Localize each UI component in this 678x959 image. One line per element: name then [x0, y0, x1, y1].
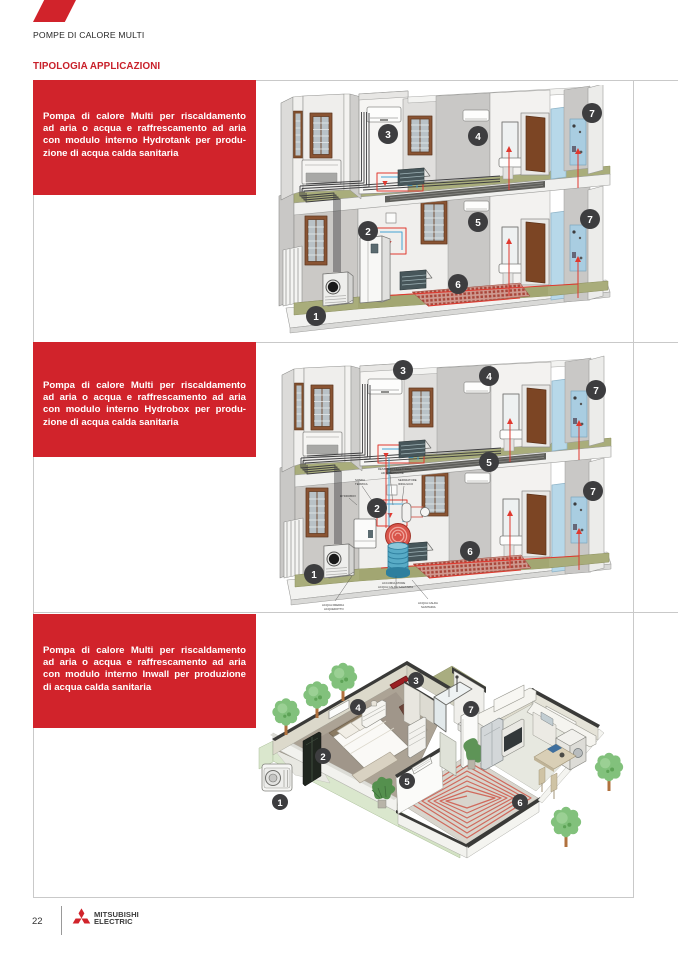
svg-text:6: 6	[455, 280, 461, 291]
svg-text:7: 7	[593, 386, 599, 397]
svg-text:7: 7	[589, 109, 595, 120]
svg-text:5: 5	[486, 458, 492, 469]
svg-text:1: 1	[277, 798, 283, 809]
svg-text:7: 7	[587, 215, 593, 226]
svg-text:2: 2	[365, 227, 371, 238]
svg-text:2: 2	[320, 752, 325, 763]
svg-text:TERMICA: TERMICA	[355, 482, 368, 486]
svg-text:7: 7	[590, 487, 596, 498]
svg-text:AD IMMERSIONE: AD IMMERSIONE	[381, 471, 404, 475]
svg-text:1: 1	[313, 312, 319, 323]
svg-text:3: 3	[413, 676, 418, 687]
svg-text:5: 5	[404, 777, 410, 788]
svg-text:3: 3	[385, 130, 391, 141]
svg-text:6: 6	[467, 547, 473, 558]
svg-text:SANITARIA: SANITARIA	[421, 605, 436, 609]
svg-text:ACQUA CALDA SANITARIA: ACQUA CALDA SANITARIA	[378, 585, 413, 589]
svg-text:4: 4	[355, 703, 361, 714]
svg-text:7: 7	[468, 705, 473, 716]
svg-text:3: 3	[400, 366, 406, 377]
svg-text:2: 2	[374, 504, 380, 515]
svg-text:4: 4	[486, 372, 492, 383]
svg-text:1: 1	[311, 570, 317, 581]
svg-text:ACQUEDOTTO: ACQUEDOTTO	[324, 607, 345, 611]
svg-text:5: 5	[475, 218, 481, 229]
svg-text:4: 4	[475, 132, 481, 143]
svg-text:IDRAULICO: IDRAULICO	[398, 482, 414, 486]
svg-text:6: 6	[517, 798, 522, 809]
svg-text:HYDROBOX: HYDROBOX	[340, 494, 356, 498]
